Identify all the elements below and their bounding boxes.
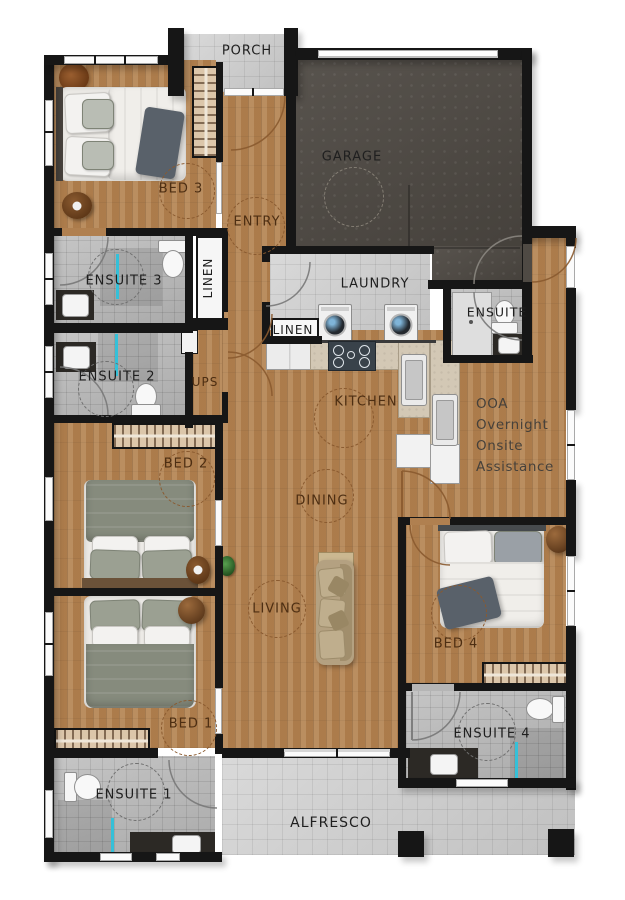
bed2-label: BED 2 — [164, 457, 209, 472]
sofa — [316, 560, 354, 665]
hall-cupboard — [181, 330, 198, 354]
wall — [215, 546, 223, 688]
wall — [44, 323, 193, 333]
ensuite4-toilet — [526, 698, 554, 720]
kitchen-label: KITCHEN — [334, 395, 397, 410]
linen-small-label: LINEN — [273, 323, 314, 337]
ensuite4-toilet-tank — [552, 696, 565, 723]
wall — [286, 56, 296, 254]
wall — [522, 48, 532, 238]
wall — [44, 852, 222, 862]
wall — [44, 588, 223, 596]
garage-roller-door — [318, 50, 498, 58]
ensuite1-label: ENSUITE 1 — [95, 788, 172, 803]
floor-plan: PORCH GARAGE BED 3 ENTRY ENSUITE 3 LINEN… — [0, 0, 625, 900]
washing-machine-2 — [384, 304, 418, 342]
bed-3 — [56, 87, 186, 181]
bed1-pouf — [178, 597, 205, 624]
ooa-note: OOA Overnight Onsite Assistance — [476, 394, 554, 478]
bed2-window — [45, 477, 53, 521]
ensuite3-label: ENSUITE 3 — [85, 274, 162, 289]
bed3-window-left — [45, 100, 53, 166]
dining-label: DINING — [295, 494, 348, 509]
ensuite1-shower — [58, 800, 112, 852]
wall — [566, 626, 576, 790]
bed2-robe — [112, 423, 219, 449]
wall — [262, 246, 434, 254]
ensuite4-label: ENSUITE 4 — [453, 727, 530, 742]
laundry-label: LAUNDRY — [341, 277, 410, 292]
ensuite3-toilet — [162, 250, 184, 278]
kitchen-cabinets — [266, 342, 314, 370]
linen-tall-label: LINEN — [201, 258, 215, 299]
wall — [168, 28, 184, 96]
ensuite3-door-gap — [62, 228, 106, 236]
bed3-side-table — [62, 192, 92, 219]
wall — [443, 289, 451, 361]
vestibule-side-door — [566, 246, 575, 288]
wall — [216, 62, 223, 162]
ensuite1-window-bottom2 — [156, 853, 180, 861]
ensuite4-shower-screen — [515, 742, 518, 778]
garage-circle — [324, 167, 384, 227]
wall — [44, 58, 54, 862]
wall — [185, 228, 193, 330]
wall — [566, 288, 576, 410]
garage-door-gap — [523, 244, 532, 282]
alfresco-pier — [398, 831, 424, 857]
alfresco-pier — [548, 829, 574, 857]
porch-label: PORCH — [222, 44, 272, 59]
ensuite-mid-drain — [469, 320, 473, 324]
wall — [44, 748, 158, 758]
alfresco-label: ALFRESCO — [290, 815, 372, 831]
kitchen-sink-1 — [401, 354, 427, 406]
ensuite-mid-toilet-tank — [491, 322, 518, 334]
kitchen-sink-2 — [432, 394, 458, 446]
cooktop — [328, 341, 376, 371]
bed4-label: BED 4 — [434, 637, 479, 652]
wall — [215, 423, 223, 500]
entry-label: ENTRY — [233, 215, 280, 230]
bed4-circle — [431, 585, 487, 641]
vestibule-floor — [532, 236, 566, 362]
bed4-door-gap — [410, 518, 450, 525]
garage-store-line — [408, 185, 410, 249]
ensuite-mid-basin — [498, 337, 520, 354]
ensuite2-basin — [63, 346, 90, 369]
ensuite1-shower-screen — [111, 818, 114, 852]
garage-label: GARAGE — [322, 150, 382, 165]
ensuite1-window-bottom — [100, 853, 132, 861]
ensuite4-door-gap — [412, 684, 454, 691]
ensuite1-window — [45, 790, 53, 838]
wall — [44, 415, 228, 423]
bed1-label: BED 1 — [169, 717, 214, 732]
bed2-door-leaf — [215, 500, 222, 546]
ensuite4-window-bottom — [456, 779, 508, 787]
ups-label: UPS — [192, 375, 219, 389]
ensuite2-label: ENSUITE 2 — [78, 370, 155, 385]
wall — [428, 280, 532, 289]
bed3-label: BED 3 — [159, 182, 204, 197]
island-cabinet-end — [430, 444, 460, 484]
ensuite-mid-label: ENSUITE — [467, 305, 528, 320]
front-entry-door — [224, 88, 284, 96]
washing-machine-1 — [318, 304, 352, 342]
ensuite-mid-shower — [452, 292, 492, 356]
living-label: LIVING — [252, 602, 302, 617]
wall — [222, 236, 228, 312]
ensuite4-basin — [430, 754, 458, 775]
bed2-side-table — [186, 556, 210, 584]
wall — [443, 355, 533, 363]
garage-floor-nook — [432, 246, 522, 282]
bed3-door-leaf — [216, 162, 222, 214]
ensuite3-basin — [62, 294, 89, 317]
wall — [262, 336, 322, 344]
wall — [398, 517, 406, 788]
kitchen-cabinet-end — [396, 434, 432, 468]
bed3-window-top — [64, 56, 158, 64]
wall — [193, 318, 228, 330]
